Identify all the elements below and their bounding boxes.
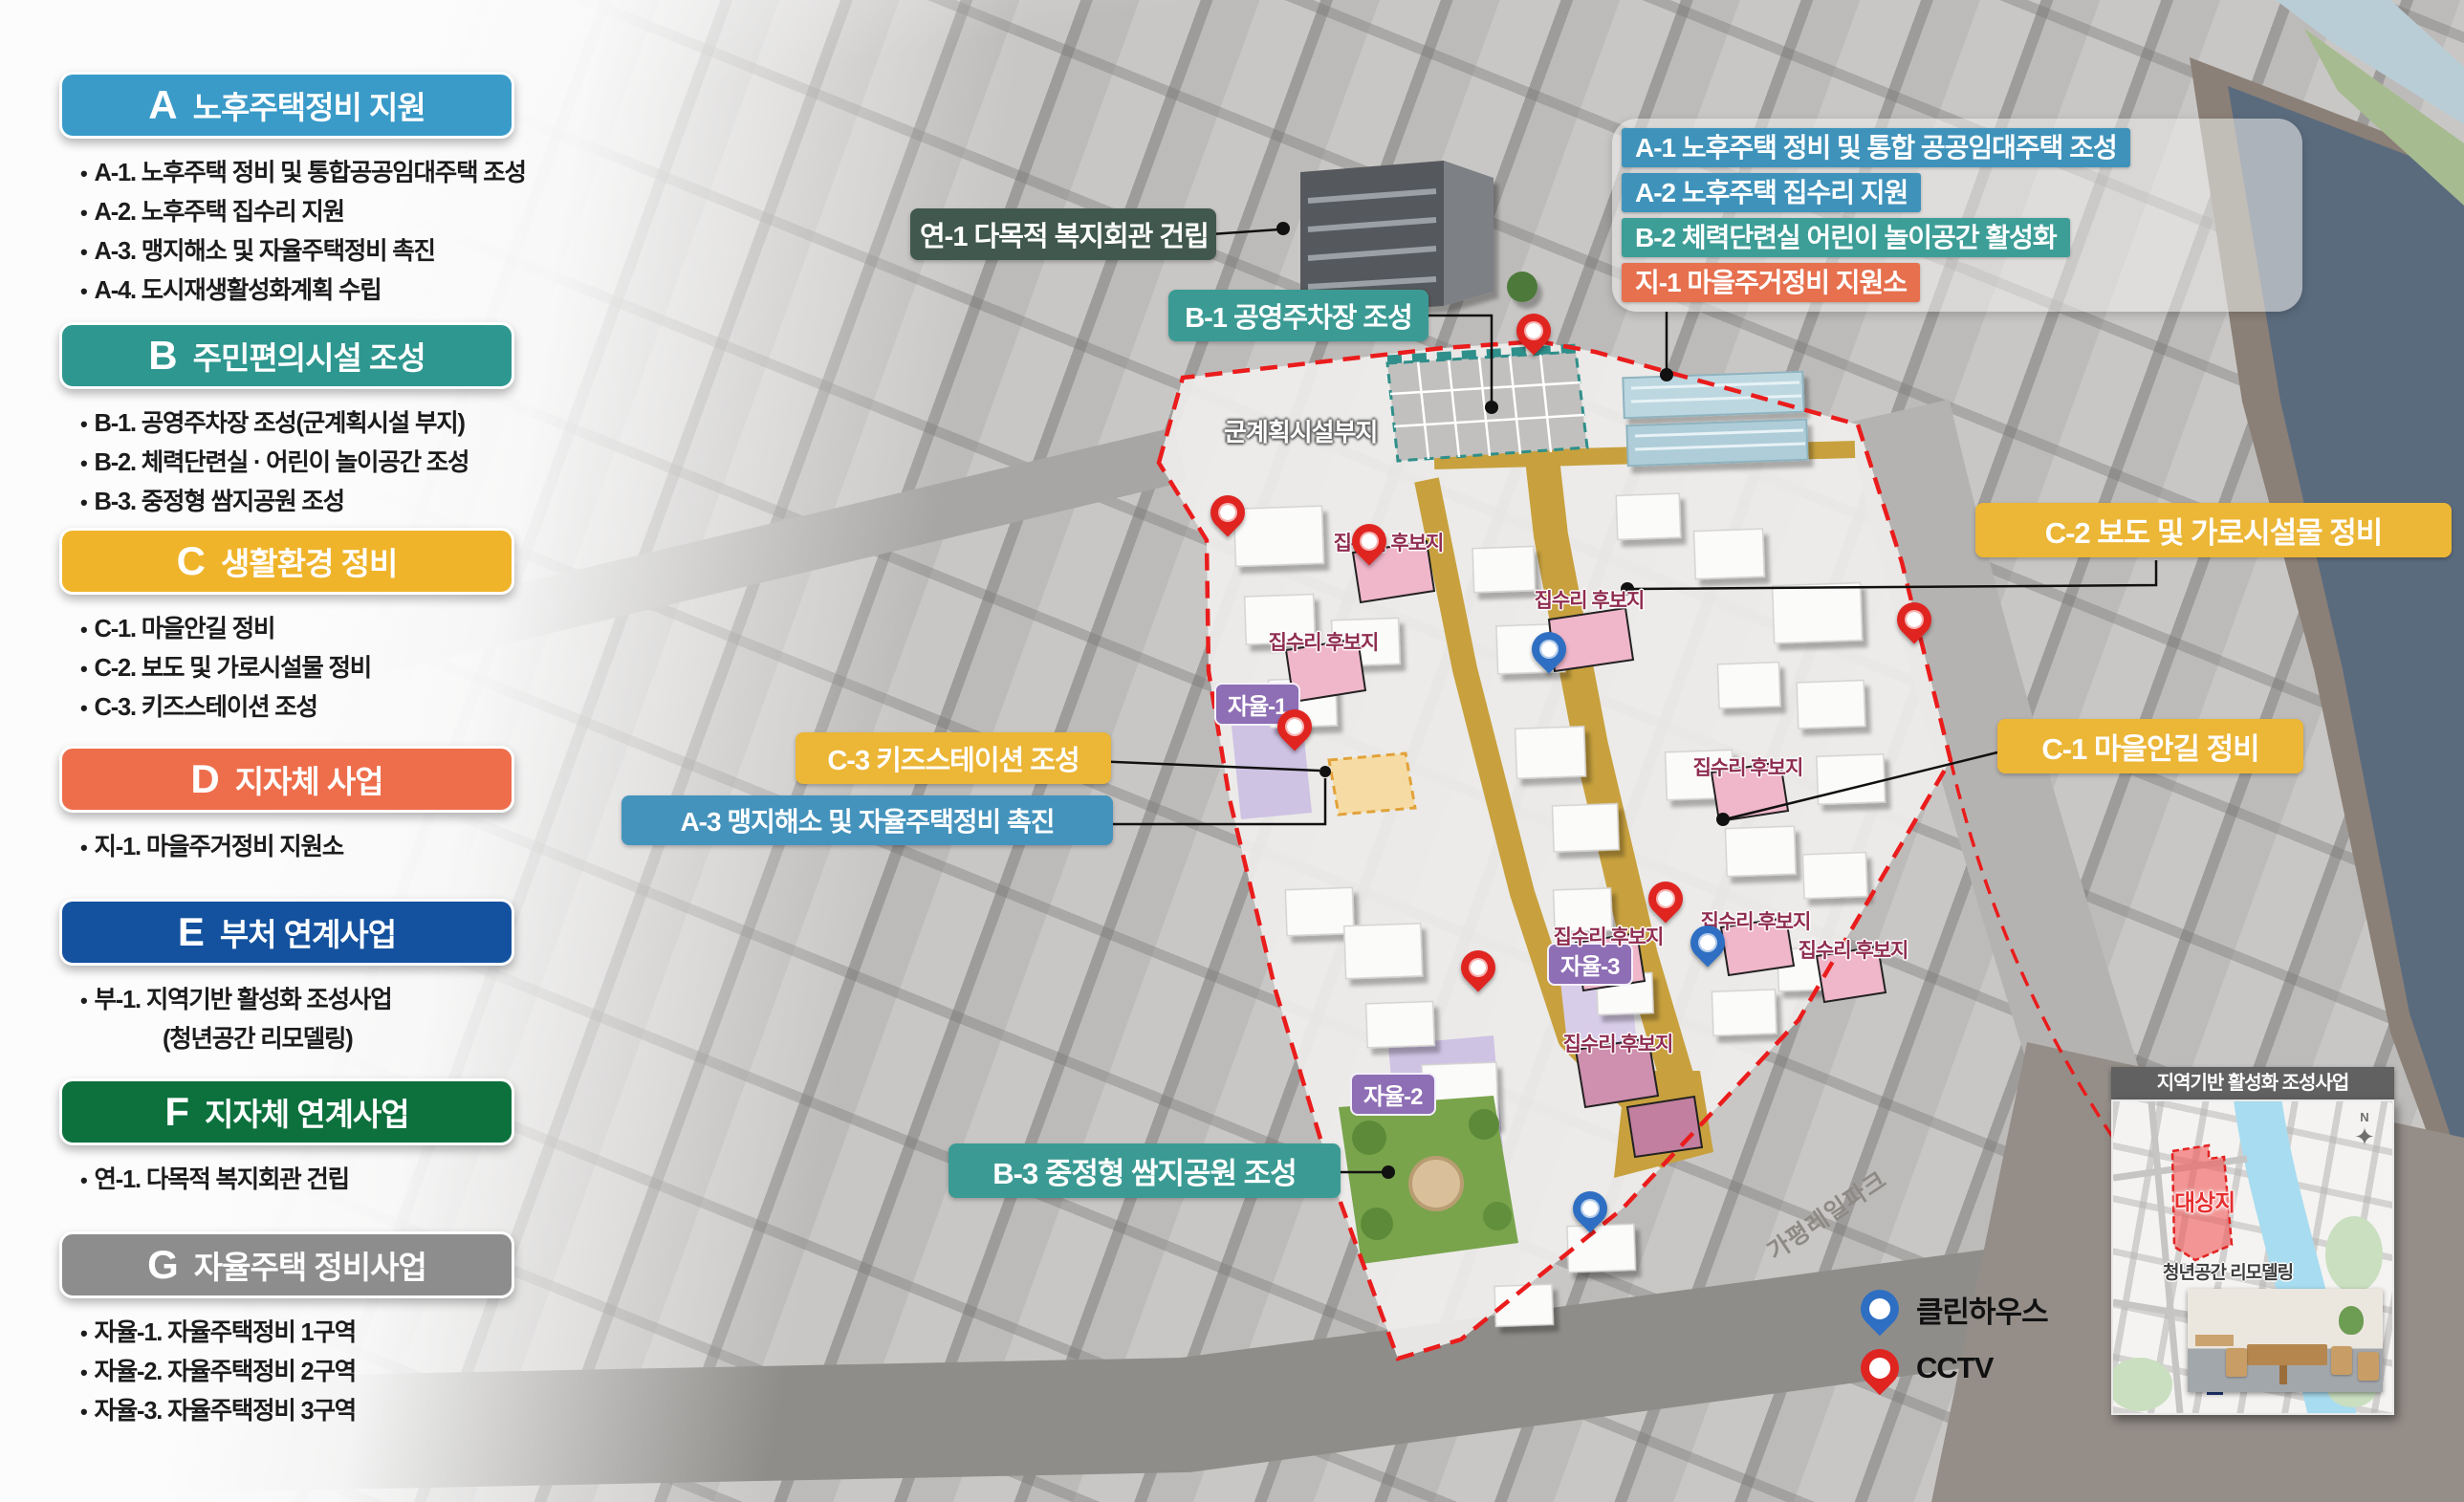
item-text: 연-1. 다목적 복지회관 건립 [95,1166,349,1193]
photo-table [2247,1344,2327,1365]
repair-candidate-label: 집수리 후보지 [1554,922,1664,950]
item-text: B-2. 체력단련실 · 어린이 놀이공간 조성 [95,449,469,476]
section-title: 자율주택 정비사업 [194,1242,426,1288]
legend-label: CCTV [1916,1351,1993,1385]
item-text: C-2. 보도 및 가로시설물 정비 [95,655,372,682]
section-a-item-3: •A-3. 맹지해소 및 자율주택정비 촉진 [80,232,576,272]
bullet-icon: • [80,836,87,860]
card-row-3: B-2 체력단련실 어린이 놀이공간 활성화 [1622,218,2070,257]
item-text: B-1. 공영주차장 조성(군계획시설 부지) [95,410,465,437]
section-code: A [148,82,177,128]
repair-candidate-label: 집수리 후보지 [1535,585,1645,614]
parcel-label: 군계획시설부지 [1224,413,1377,448]
section-code: D [190,756,219,802]
inset-title: 지역기반 활성화 조성사업 [2111,1067,2394,1099]
section-e-item-2: (청년공간 리모델링) [80,1020,576,1059]
section-a-item-1: •A-1. 노후주택 정비 및 통합공공임대주택 조성 [80,154,576,193]
section-d-item-1: •지-1. 마을주거정비 지원소 [80,828,576,867]
section-c-item-1: •C-1. 마을안길 정비 [80,610,576,649]
item-text: 부-1. 지역기반 활성화 조성사업 [95,987,392,1013]
legend-section-c: C생활환경 정비•C-1. 마을안길 정비•C-2. 보도 및 가로시설물 정비… [59,528,576,728]
section-f-header: F지자체 연계사업 [59,1078,514,1145]
bullet-icon: • [80,240,87,264]
bullet-icon: • [80,490,87,514]
zone-label-2: 자율-2 [1350,1073,1436,1116]
section-g-item-2: •자율-2. 자율주택정비 2구역 [80,1353,576,1392]
photo-chair [2331,1346,2352,1375]
section-code: B [148,333,177,379]
section-c-header: C생활환경 정비 [59,528,514,595]
section-a-item-2: •A-2. 노후주택 집수리 지원 [80,193,576,232]
section-b-items: •B-1. 공영주차장 조성(군계획시설 부지)•B-2. 체력단련실 · 어린… [59,404,576,522]
section-c-item-2: •C-2. 보도 및 가로시설물 정비 [80,649,576,688]
bullet-icon: • [80,618,87,642]
section-e-items: •부-1. 지역기반 활성화 조성사업(청년공간 리모델링) [59,981,576,1059]
legend-section-a: A노후주택정비 지원•A-1. 노후주택 정비 및 통합공공임대주택 조성•A-… [59,72,576,311]
section-b-header: B주민편의시설 조성 [59,322,514,389]
section-a-items: •A-1. 노후주택 정비 및 통합공공임대주택 조성•A-2. 노후주택 집수… [59,154,576,311]
repair-candidate-label: 집수리 후보지 [1799,935,1908,964]
item-text: C-1. 마을안길 정비 [95,616,275,642]
legend-label: 클린하우스 [1916,1288,2048,1331]
card-row-4: 지-1 마을주거정비 지원소 [1622,263,1920,302]
section-g-items: •자율-1. 자율주택정비 1구역•자율-2. 자율주택정비 2구역•자율-3.… [59,1314,576,1431]
section-b-item-3: •B-3. 중정형 쌈지공원 조성 [80,483,576,522]
bullet-icon: • [80,1168,87,1192]
section-title: 부처 연계사업 [220,909,396,955]
section-title: 주민편의시설 조성 [193,333,425,379]
section-b-item-2: •B-2. 체력단련실 · 어린이 놀이공간 조성 [80,444,576,483]
card-row-1: A-1 노후주택 정비 및 통합 공공임대주택 조성 [1622,128,2130,167]
map-label-b3: B-3 중정형 쌈지공원 조성 [949,1143,1341,1198]
bullet-icon: • [80,412,87,436]
urban-regeneration-map-poster: A노후주택정비 지원•A-1. 노후주택 정비 및 통합공공임대주택 조성•A-… [0,0,2464,1502]
bullet-icon: • [80,201,87,225]
section-d-items: •지-1. 마을주거정비 지원소 [59,828,576,867]
bullet-icon: • [80,696,87,720]
project-callout-card: A-1 노후주택 정비 및 통합 공공임대주택 조성A-2 노후주택 집수리 지… [1612,119,2302,312]
map-label-c1: C-1 마을안길 정비 [1997,719,2303,773]
map-label-yeon1: 연-1 다목적 복지회관 건립 [910,208,1216,260]
map-label-c2: C-2 보도 및 가로시설물 정비 [1975,503,2452,557]
section-title: 생활환경 정비 [221,538,397,584]
bullet-icon: • [80,1321,87,1345]
map-legend: 클린하우스CCTV [1861,1279,2048,1398]
section-f-items: •연-1. 다목적 복지회관 건립 [59,1161,576,1200]
youth-space-label: 청년공간 리모델링 [2163,1258,2293,1284]
legend-item-cleanhouse: 클린하우스 [1861,1279,2048,1339]
card-row-2: A-2 노후주택 집수리 지원 [1622,173,1921,212]
item-text: A-1. 노후주택 정비 및 통합공공임대주택 조성 [95,160,526,186]
bullet-icon: • [80,162,87,185]
item-text: A-4. 도시재생활성화계획 수립 [95,277,382,304]
legend-section-g: G자율주택 정비사업•자율-1. 자율주택정비 1구역•자율-2. 자율주택정비… [59,1231,576,1431]
item-text: A-2. 노후주택 집수리 지원 [95,199,344,226]
bullet-icon: • [80,279,87,303]
section-f-item-1: •연-1. 다목적 복지회관 건립 [80,1161,576,1200]
photo-chair [2358,1352,2379,1381]
bullet-icon: • [80,1400,87,1424]
section-e-header: E부처 연계사업 [59,899,514,966]
section-code: C [177,538,206,584]
item-text: 자율-1. 자율주택정비 1구역 [95,1319,357,1346]
section-d-header: D지자체 사업 [59,746,514,813]
item-text: C-3. 키즈스테이션 조성 [95,694,317,721]
legend-section-b: B주민편의시설 조성•B-1. 공영주차장 조성(군계획시설 부지)•B-2. … [59,322,576,522]
legend-section-e: E부처 연계사업•부-1. 지역기반 활성화 조성사업(청년공간 리모델링) [59,899,576,1059]
section-code: F [164,1089,189,1135]
legend-item-cctv: CCTV [1861,1339,2048,1398]
section-title: 지자체 연계사업 [205,1089,409,1135]
repair-candidate-label: 집수리 후보지 [1693,752,1803,781]
section-a-item-4: •A-4. 도시재생활성화계획 수립 [80,272,576,311]
item-text: 자율-2. 자율주택정비 2구역 [95,1359,357,1385]
repair-candidate-label: 집수리 후보지 [1269,627,1379,656]
bullet-icon: • [80,989,87,1012]
bullet-icon: • [80,657,87,681]
bullet-icon: • [80,1361,87,1384]
item-text: (청년공간 리모델링) [163,1026,353,1053]
section-code: E [178,909,205,955]
section-g-header: G자율주택 정비사업 [59,1231,514,1298]
item-text: 지-1. 마을주거정비 지원소 [95,834,344,860]
item-text: A-3. 맹지해소 및 자율주택정비 촉진 [95,238,435,265]
cctv-pin-icon [1853,1341,1908,1396]
repair-candidate-label: 집수리 후보지 [1334,528,1444,556]
item-text: 자율-3. 자율주택정비 3구역 [95,1398,357,1425]
cleanhouse-pin-icon [1853,1282,1908,1337]
section-title: 지자체 사업 [235,756,383,802]
youth-space-photo [2188,1289,2383,1392]
legend-section-f: F지자체 연계사업•연-1. 다목적 복지회관 건립 [59,1078,576,1200]
legend-section-d: D지자체 사업•지-1. 마을주거정비 지원소 [59,746,576,867]
map-label-a3: A-3 맹지해소 및 자율주택정비 촉진 [621,795,1113,845]
section-e-item-1: •부-1. 지역기반 활성화 조성사업 [80,981,576,1020]
compass-icon: N✦ [2348,1111,2381,1159]
map-label-b1: B-1 공영주차장 조성 [1168,290,1428,341]
photo-chair [2226,1348,2247,1377]
section-code: G [147,1242,179,1288]
section-b-item-1: •B-1. 공영주차장 조성(군계획시설 부지) [80,404,576,444]
photo-plant [2339,1306,2364,1335]
section-g-item-1: •자율-1. 자율주택정비 1구역 [80,1314,576,1353]
section-title: 노후주택정비 지원 [193,82,425,128]
photo-table-leg [2279,1365,2287,1384]
item-text: B-3. 중정형 쌈지공원 조성 [95,489,344,515]
repair-candidate-label: 집수리 후보지 [1563,1029,1673,1057]
linked-project-inset: 지역기반 활성화 조성사업 대상지 청년공간 리모델링 [2111,1067,2404,1415]
section-c-item-3: •C-3. 키즈스테이션 조성 [80,688,576,728]
section-a-header: A노후주택정비 지원 [59,72,514,139]
target-site-label: 대상지 [2174,1184,2235,1217]
map-label-c3: C-3 키즈스테이션 조성 [796,732,1111,784]
photo-bench [2195,1335,2234,1346]
inset-minimap: 대상지 청년공간 리모델링 N✦ [2111,1099,2394,1415]
section-g-item-3: •자율-3. 자율주택정비 3구역 [80,1392,576,1431]
bullet-icon: • [80,451,87,475]
section-c-items: •C-1. 마을안길 정비•C-2. 보도 및 가로시설물 정비•C-3. 키즈… [59,610,576,728]
